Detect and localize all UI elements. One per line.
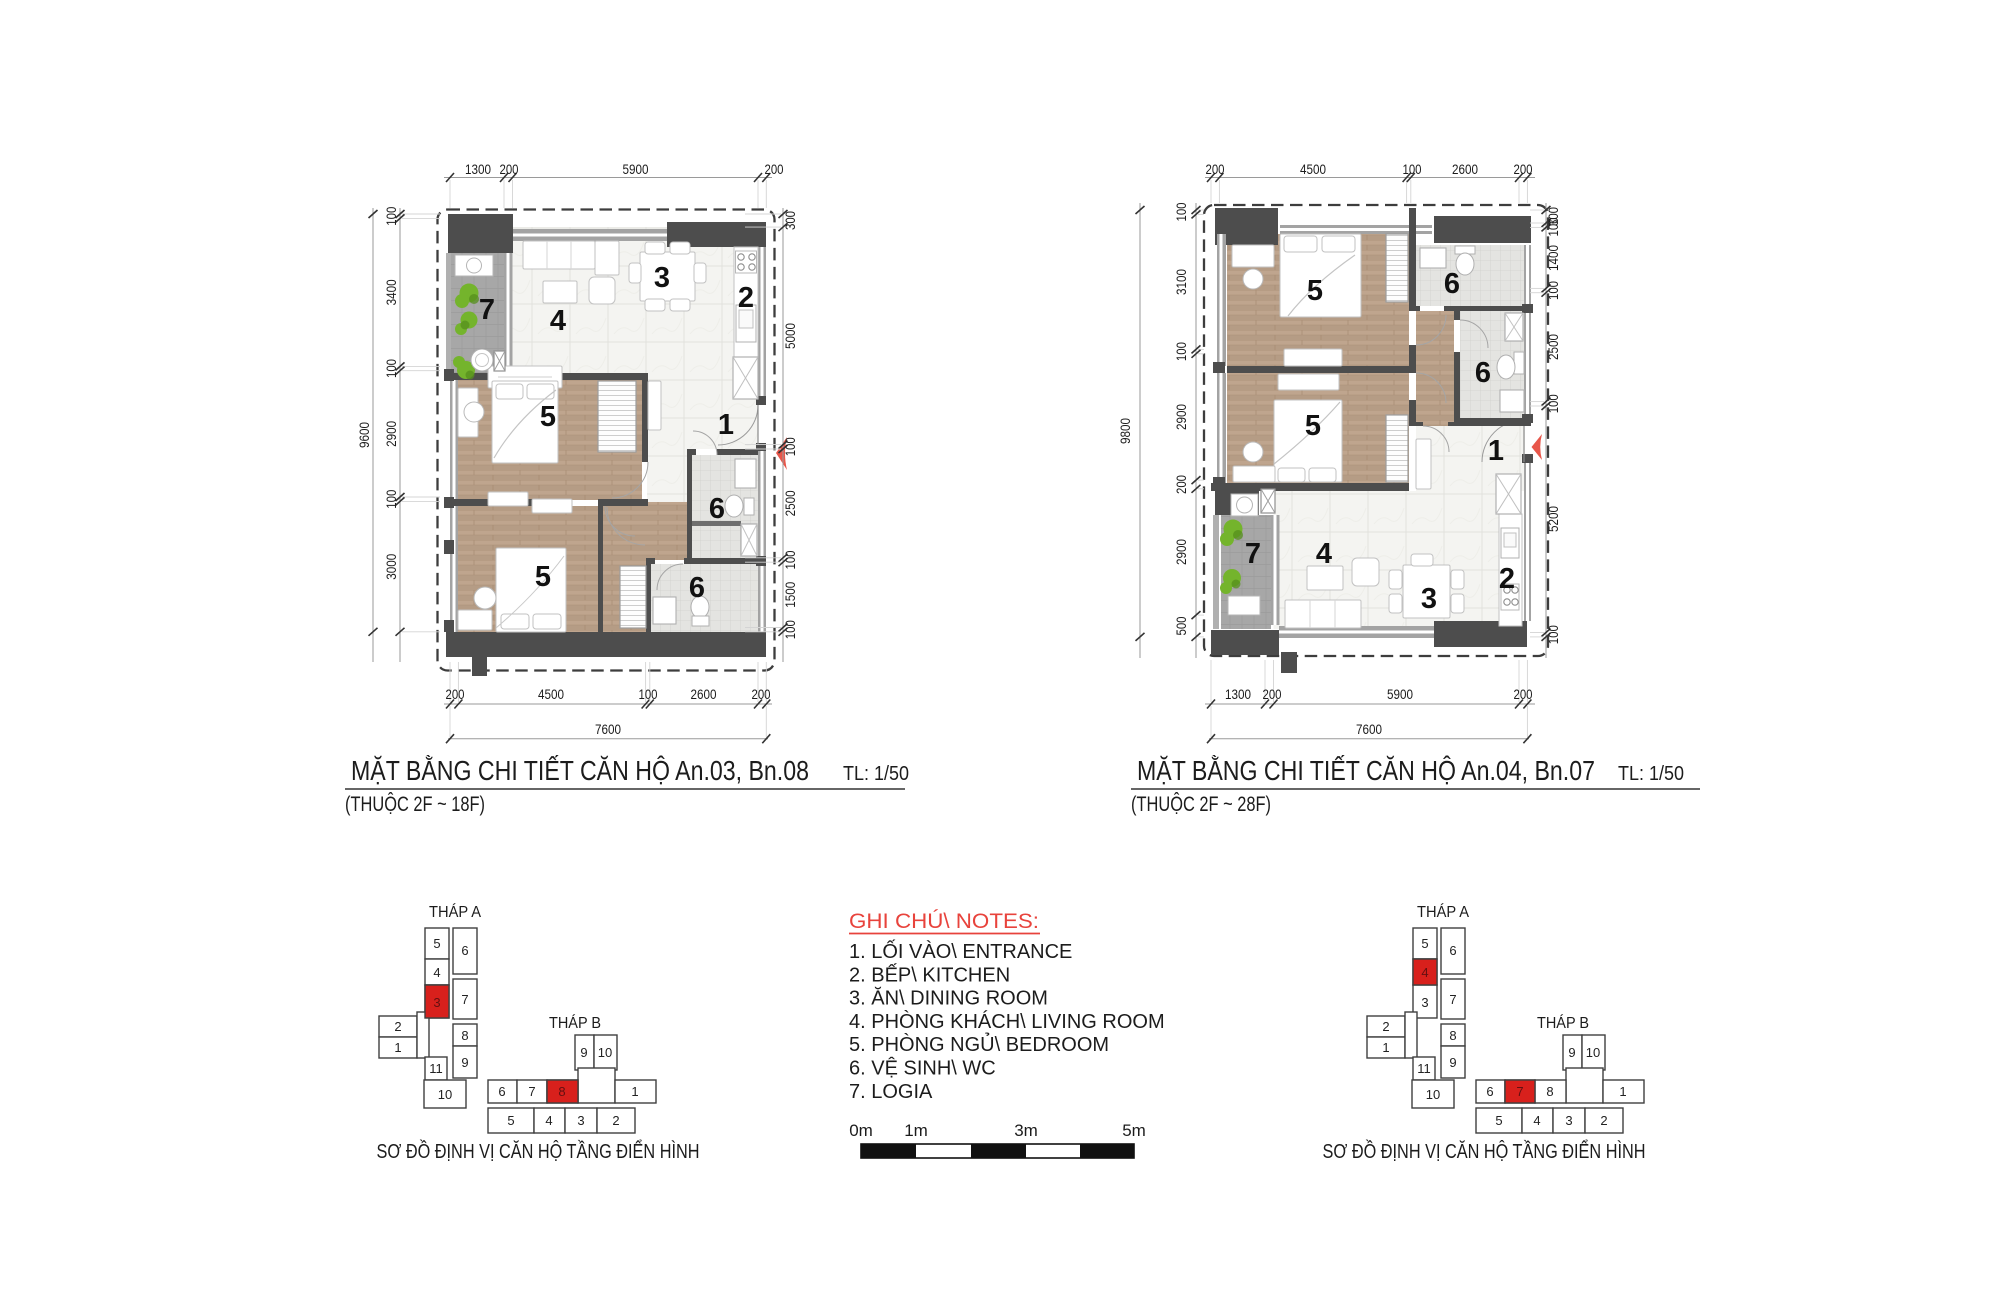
svg-text:100: 100	[383, 490, 399, 509]
svg-text:2: 2	[1382, 1019, 1389, 1034]
svg-text:3: 3	[433, 995, 440, 1010]
svg-text:1: 1	[631, 1084, 638, 1099]
svg-text:100: 100	[782, 437, 798, 456]
svg-text:100: 100	[1545, 625, 1561, 644]
svg-text:9600: 9600	[356, 422, 372, 448]
svg-text:5: 5	[1305, 410, 1321, 442]
svg-text:2500: 2500	[782, 490, 798, 516]
svg-text:7: 7	[528, 1084, 535, 1099]
svg-text:3: 3	[577, 1113, 584, 1128]
svg-text:1400: 1400	[1545, 245, 1561, 271]
svg-text:100: 100	[639, 686, 658, 702]
svg-text:4500: 4500	[1300, 161, 1326, 177]
svg-text:2900: 2900	[1173, 404, 1189, 430]
svg-text:3: 3	[654, 262, 670, 294]
svg-text:200: 200	[446, 686, 465, 702]
svg-text:THÁP A: THÁP A	[1417, 904, 1470, 921]
svg-text:9: 9	[1568, 1045, 1575, 1060]
svg-text:5: 5	[507, 1113, 514, 1128]
svg-text:8: 8	[1546, 1084, 1553, 1099]
svg-text:200: 200	[1514, 686, 1533, 702]
svg-text:2: 2	[1499, 563, 1515, 595]
svg-text:6: 6	[1475, 357, 1491, 389]
svg-text:THÁP B: THÁP B	[549, 1015, 601, 1032]
svg-text:100: 100	[383, 359, 399, 378]
svg-text:100: 100	[1545, 394, 1561, 413]
svg-text:5000: 5000	[782, 323, 798, 349]
svg-text:4: 4	[1421, 965, 1428, 980]
svg-text:100: 100	[782, 550, 798, 569]
svg-text:0m: 0m	[849, 1121, 873, 1140]
svg-text:2. BẾP\ KITCHEN: 2. BẾP\ KITCHEN	[849, 963, 1010, 986]
svg-text:5: 5	[1307, 275, 1323, 307]
svg-text:THÁP A: THÁP A	[429, 904, 482, 921]
svg-text:7: 7	[1516, 1084, 1523, 1099]
svg-text:TL: 1/50: TL: 1/50	[843, 763, 909, 785]
svg-text:5200: 5200	[1545, 506, 1561, 532]
svg-text:8: 8	[558, 1084, 565, 1099]
svg-text:9: 9	[1449, 1055, 1456, 1070]
svg-text:1: 1	[1488, 435, 1504, 467]
svg-text:6: 6	[1449, 943, 1456, 958]
svg-text:4500: 4500	[538, 686, 564, 702]
svg-text:2500: 2500	[1545, 334, 1561, 360]
svg-text:1: 1	[1619, 1084, 1626, 1099]
svg-text:8: 8	[461, 1028, 468, 1043]
svg-text:200: 200	[1173, 475, 1189, 494]
svg-text:2: 2	[1600, 1113, 1607, 1128]
svg-text:10: 10	[598, 1045, 612, 1060]
svg-text:MẶT BẰNG CHI TIẾT CĂN HỘ An.04: MẶT BẰNG CHI TIẾT CĂN HỘ An.04, Bn.07	[1137, 755, 1595, 786]
svg-text:100: 100	[1545, 217, 1561, 236]
svg-text:9: 9	[461, 1055, 468, 1070]
svg-text:2: 2	[612, 1113, 619, 1128]
svg-text:200: 200	[500, 161, 519, 177]
svg-text:6. VỆ SINH\ WC: 6. VỆ SINH\ WC	[849, 1057, 996, 1080]
svg-text:7600: 7600	[595, 721, 621, 737]
svg-text:2900: 2900	[383, 421, 399, 447]
svg-text:200: 200	[1206, 161, 1225, 177]
svg-text:2: 2	[394, 1019, 401, 1034]
svg-text:6: 6	[498, 1084, 505, 1099]
svg-text:200: 200	[1514, 161, 1533, 177]
svg-text:5m: 5m	[1122, 1121, 1146, 1140]
svg-text:5900: 5900	[1387, 686, 1413, 702]
svg-text:MẶT BẰNG CHI TIẾT CĂN HỘ An.03: MẶT BẰNG CHI TIẾT CĂN HỘ An.03, Bn.08	[351, 755, 809, 786]
svg-text:5: 5	[1495, 1113, 1502, 1128]
svg-text:SƠ ĐỒ ĐỊNH VỊ CĂN HỘ TẦNG ĐIỂN: SƠ ĐỒ ĐỊNH VỊ CĂN HỘ TẦNG ĐIỂN HÌNH	[1323, 1139, 1646, 1163]
svg-text:100: 100	[1403, 161, 1422, 177]
svg-text:(THUỘC 2F ~ 18F): (THUỘC 2F ~ 18F)	[345, 793, 485, 816]
svg-text:6: 6	[709, 493, 725, 525]
svg-text:4. PHÒNG KHÁCH\ LIVING ROOM: 4. PHÒNG KHÁCH\ LIVING ROOM	[849, 1010, 1165, 1033]
svg-text:7: 7	[461, 992, 468, 1007]
svg-text:TL: 1/50: TL: 1/50	[1618, 763, 1684, 785]
svg-text:1300: 1300	[1225, 686, 1251, 702]
svg-text:7: 7	[479, 294, 495, 326]
svg-text:5: 5	[1421, 936, 1428, 951]
svg-text:3. ĂN\ DINING ROOM: 3. ĂN\ DINING ROOM	[849, 987, 1048, 1010]
svg-text:2900: 2900	[1173, 539, 1189, 565]
svg-text:(THUỘC 2F ~ 28F): (THUỘC 2F ~ 28F)	[1131, 793, 1271, 816]
svg-text:10: 10	[1586, 1045, 1600, 1060]
svg-text:3: 3	[1565, 1113, 1572, 1128]
svg-text:3: 3	[1421, 583, 1437, 615]
svg-text:6: 6	[689, 572, 705, 604]
svg-text:6: 6	[1444, 268, 1460, 300]
svg-text:200: 200	[1263, 686, 1282, 702]
svg-text:6: 6	[1486, 1084, 1493, 1099]
svg-text:3100: 3100	[1173, 269, 1189, 295]
svg-text:1: 1	[394, 1040, 401, 1055]
svg-text:4: 4	[545, 1113, 552, 1128]
svg-text:4: 4	[550, 305, 566, 337]
svg-text:200: 200	[765, 161, 784, 177]
svg-text:7: 7	[1245, 538, 1261, 570]
svg-text:100: 100	[782, 620, 798, 639]
svg-text:7: 7	[1449, 992, 1456, 1007]
svg-text:500: 500	[1173, 616, 1189, 635]
svg-text:100: 100	[383, 207, 399, 226]
svg-text:11: 11	[429, 1061, 443, 1076]
svg-text:1. LỐI VÀO\ ENTRANCE: 1. LỐI VÀO\ ENTRANCE	[849, 939, 1072, 963]
svg-text:1: 1	[1382, 1040, 1389, 1055]
svg-text:SƠ ĐỒ ĐỊNH VỊ CĂN HỘ TẦNG ĐIỂN: SƠ ĐỒ ĐỊNH VỊ CĂN HỘ TẦNG ĐIỂN HÌNH	[377, 1139, 700, 1163]
svg-text:GHI CHÚ\ NOTES:: GHI CHÚ\ NOTES:	[849, 910, 1039, 933]
svg-text:2600: 2600	[691, 686, 717, 702]
svg-text:7600: 7600	[1356, 721, 1382, 737]
svg-text:100: 100	[1173, 342, 1189, 361]
svg-text:2600: 2600	[1452, 161, 1478, 177]
svg-text:4: 4	[1533, 1113, 1540, 1128]
svg-text:7. LOGIA: 7. LOGIA	[849, 1081, 933, 1103]
svg-text:9800: 9800	[1117, 418, 1133, 444]
svg-text:1m: 1m	[904, 1121, 928, 1140]
svg-text:200: 200	[752, 686, 771, 702]
svg-text:5. PHÒNG NGỦ\ BEDROOM: 5. PHÒNG NGỦ\ BEDROOM	[849, 1032, 1109, 1056]
svg-text:3400: 3400	[383, 279, 399, 305]
svg-text:1300: 1300	[465, 161, 491, 177]
svg-text:4: 4	[433, 965, 440, 980]
svg-text:10: 10	[438, 1087, 452, 1102]
svg-text:6: 6	[461, 943, 468, 958]
svg-text:1500: 1500	[782, 582, 798, 608]
svg-text:THÁP B: THÁP B	[1537, 1015, 1589, 1032]
svg-text:300: 300	[782, 211, 798, 230]
svg-text:3m: 3m	[1014, 1121, 1038, 1140]
svg-text:100: 100	[1545, 281, 1561, 300]
svg-text:5: 5	[535, 561, 551, 593]
svg-text:3: 3	[1421, 995, 1428, 1010]
svg-text:5: 5	[540, 401, 556, 433]
svg-text:2: 2	[738, 282, 754, 314]
svg-text:3000: 3000	[383, 554, 399, 580]
svg-text:5900: 5900	[623, 161, 649, 177]
svg-text:9: 9	[580, 1045, 587, 1060]
svg-text:11: 11	[1417, 1061, 1431, 1076]
svg-text:1: 1	[718, 409, 734, 441]
svg-text:8: 8	[1449, 1028, 1456, 1043]
svg-text:10: 10	[1426, 1087, 1440, 1102]
svg-text:5: 5	[433, 936, 440, 951]
svg-text:4: 4	[1316, 538, 1332, 570]
svg-text:100: 100	[1173, 202, 1189, 221]
